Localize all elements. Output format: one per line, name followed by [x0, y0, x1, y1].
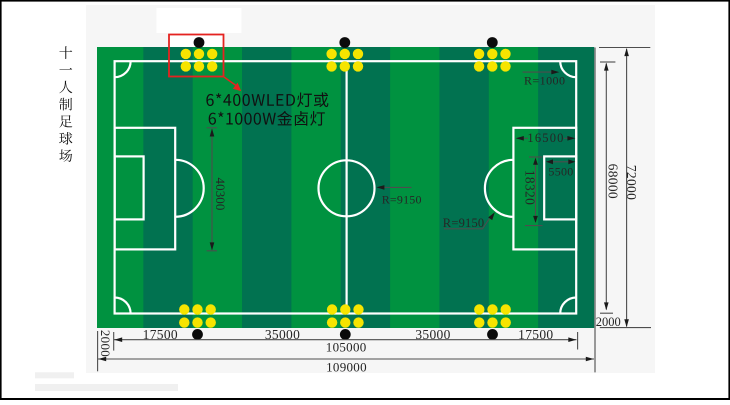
svg-text:35000: 35000: [415, 327, 450, 342]
svg-text:68000: 68000: [606, 164, 621, 199]
svg-text:18320: 18320: [522, 170, 537, 205]
svg-text:72000: 72000: [624, 165, 639, 200]
svg-text:17500: 17500: [143, 327, 178, 342]
svg-text:R=9150: R=9150: [443, 216, 485, 230]
svg-text:35000: 35000: [265, 327, 300, 342]
svg-text:2000: 2000: [596, 315, 621, 329]
svg-text:2000: 2000: [98, 330, 113, 357]
svg-text:5500: 5500: [548, 165, 573, 179]
svg-text:109000: 109000: [326, 359, 367, 374]
svg-text:105000: 105000: [326, 340, 367, 355]
svg-text:40300: 40300: [213, 178, 228, 211]
svg-text:17500: 17500: [518, 327, 553, 342]
svg-text:R=9150: R=9150: [382, 192, 422, 206]
svg-text:R=1000: R=1000: [524, 74, 565, 88]
svg-text:16500: 16500: [527, 131, 564, 145]
